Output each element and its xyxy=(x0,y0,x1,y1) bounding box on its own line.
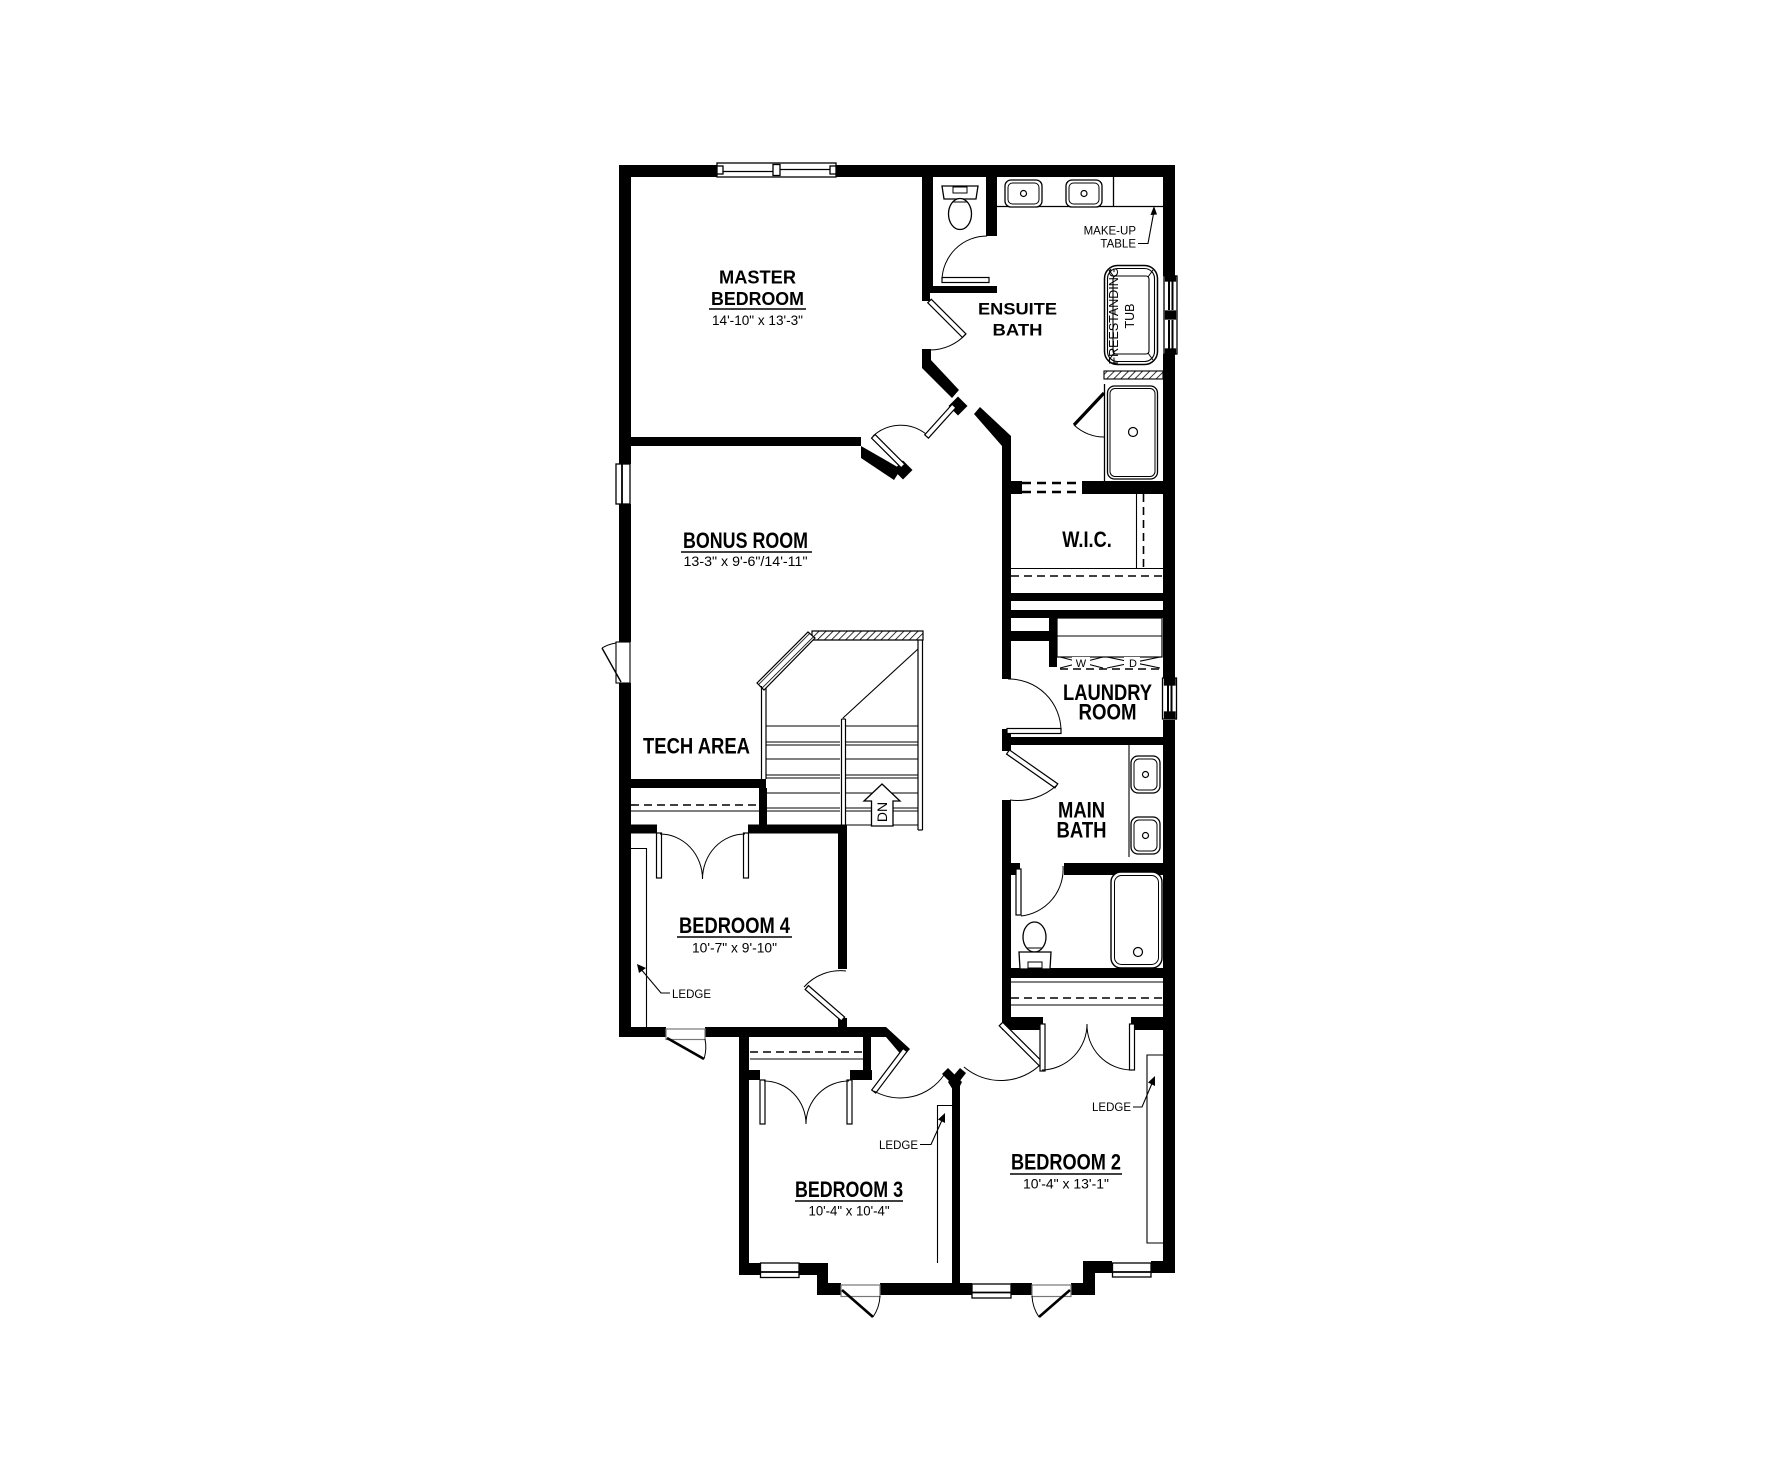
svg-text:ROOM: ROOM xyxy=(1079,700,1137,725)
svg-text:MASTER: MASTER xyxy=(719,266,796,287)
svg-text:TABLE: TABLE xyxy=(1100,239,1136,251)
svg-text:W: W xyxy=(1076,658,1087,670)
svg-text:13-3" x 9'-6"/14'-11": 13-3" x 9'-6"/14'-11" xyxy=(684,553,808,569)
svg-text:14'-10" x 13'-3": 14'-10" x 13'-3" xyxy=(712,312,803,328)
svg-text:DN: DN xyxy=(874,802,890,822)
svg-text:D: D xyxy=(1129,658,1137,670)
svg-text:LEDGE: LEDGE xyxy=(879,1140,918,1152)
svg-text:10'-4" x 10'-4": 10'-4" x 10'-4" xyxy=(809,1203,890,1219)
svg-text:10'-7" x 9'-10": 10'-7" x 9'-10" xyxy=(692,940,777,956)
svg-text:BONUS ROOM: BONUS ROOM xyxy=(683,528,808,553)
svg-text:LEDGE: LEDGE xyxy=(672,989,711,1001)
svg-text:LEDGE: LEDGE xyxy=(1092,1102,1131,1114)
svg-text:FREESTANDING: FREESTANDING xyxy=(1107,268,1121,365)
svg-text:BEDROOM 4: BEDROOM 4 xyxy=(679,913,790,938)
svg-text:BEDROOM: BEDROOM xyxy=(711,288,804,309)
svg-text:TUB: TUB xyxy=(1123,304,1137,329)
svg-text:BATH: BATH xyxy=(993,321,1043,340)
svg-text:10'-4" x 13'-1": 10'-4" x 13'-1" xyxy=(1023,1176,1109,1192)
svg-text:MAKE-UP: MAKE-UP xyxy=(1084,226,1137,238)
svg-text:ENSUITE: ENSUITE xyxy=(978,300,1057,319)
svg-text:BEDROOM 3: BEDROOM 3 xyxy=(795,1177,903,1202)
svg-text:W.I.C.: W.I.C. xyxy=(1062,527,1112,552)
svg-text:BATH: BATH xyxy=(1057,818,1107,843)
svg-text:BEDROOM 2: BEDROOM 2 xyxy=(1011,1150,1121,1175)
svg-text:TECH AREA: TECH AREA xyxy=(643,734,750,759)
